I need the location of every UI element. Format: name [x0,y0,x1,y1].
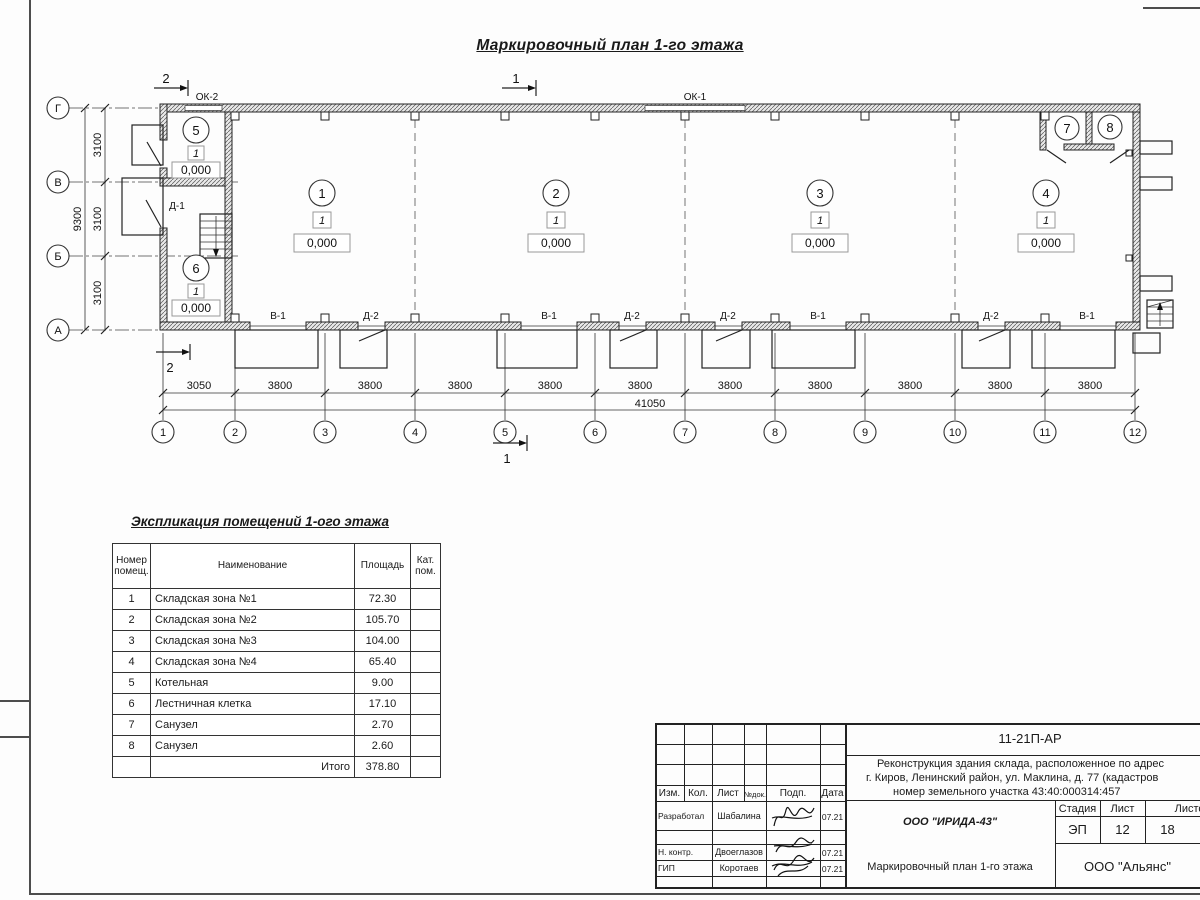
room-number: 8 [1106,120,1113,135]
gate-label: В-1 [810,311,826,322]
role-label: Разработал [658,811,712,821]
stamp-col-kol: Кол. [684,788,712,799]
list-value: 12 [1100,822,1145,837]
room-num-cell: 5 [113,673,151,694]
room-area-cell: 9.00 [355,673,411,694]
dim-label: 3800 [988,380,1012,392]
section-mark-label: 1 [503,451,510,466]
column-header: Площадь [355,544,411,589]
axis-letter: Б [54,251,61,263]
section-mark-label: 2 [166,360,173,375]
table-row: 5 Котельная 9.00 [113,673,441,694]
door-label: Д-2 [624,311,640,322]
room-category: 1 [553,215,559,227]
room-number: 5 [192,123,199,138]
dim-label: 3800 [268,380,292,392]
room-cat-cell [411,673,441,694]
stage-value: ЭП [1055,822,1100,837]
axis-number: 3 [322,427,328,439]
axis-number: 10 [949,427,961,439]
stamp-col-list: Лист [712,788,744,799]
room-num-cell: 8 [113,736,151,757]
room-cat-cell [411,715,441,736]
gate-label: В-1 [541,311,557,322]
door-label: Д-2 [363,311,379,322]
door-label: Д-2 [720,311,736,322]
room-cat-cell [411,694,441,715]
company-name: ООО "Альянс" [1055,859,1200,874]
empty-cell [113,757,151,778]
exterior-stair [1147,300,1173,328]
room-elevation: 0,000 [181,163,211,177]
building-walls [160,104,1140,330]
role-name: Коротаев [712,863,766,873]
axis-letter: А [54,325,62,337]
room-name-cell: Лестничная клетка [151,694,355,715]
room-num-cell: 2 [113,610,151,631]
table-row: 1 Складская зона №1 72.30 [113,589,441,610]
signature-dvoeglazov-korotaev [768,836,818,878]
role-date: 07.21 [820,848,845,858]
exterior-porches [122,125,1172,368]
room-number: 6 [192,261,199,276]
room-elevation: 0,000 [1031,236,1061,250]
role-label: Н. контр. [658,847,712,857]
axis-number: 4 [412,427,418,439]
room-num-cell: 7 [113,715,151,736]
room-number: 7 [1063,121,1070,136]
room-cat-cell [411,631,441,652]
axis-number: 6 [592,427,598,439]
room-name-cell: Складская зона №4 [151,652,355,673]
signature-shabalina [768,802,818,830]
dim-label: 3800 [628,380,652,392]
room-num-cell: 1 [113,589,151,610]
room-name-cell: Котельная [151,673,355,694]
room-num-cell: 4 [113,652,151,673]
table-row: 6 Лестничная клетка 17.10 [113,694,441,715]
table-row: 3 Складская зона №3 104.00 [113,631,441,652]
column-header: Наименование [151,544,355,589]
dim-label: 3800 [808,380,832,392]
room-category: 1 [193,286,199,298]
axis-letter: В [54,177,61,189]
section-mark-label: 2 [162,71,169,86]
dim-label: 3800 [718,380,742,392]
org-name: ООО "ИРИДА-43" [845,816,1055,828]
dim-total-label: 41050 [635,398,666,410]
room-name-cell: Складская зона №1 [151,589,355,610]
role-date: 07.21 [820,864,845,874]
axis-number: 1 [160,427,166,439]
table-total-row: Итого 378.80 [113,757,441,778]
dim-label: 3800 [898,380,922,392]
total-label: Итого [151,757,355,778]
column-header: Кат. пом. [411,544,441,589]
frame-bottom-border [29,893,1200,895]
opening-labels: ОК-2 ОК-1 Д-1 В-1 Д-2 В-1 Д-2 Д-2 В-1 Д-… [169,92,1095,322]
dim-label: 3800 [1078,380,1102,392]
window-label: ОК-1 [684,92,707,103]
stage-label: Стадия [1055,803,1100,815]
dim-label: 3100 [92,281,104,305]
room-number: 3 [816,186,823,201]
room-elevation: 0,000 [805,236,835,250]
dim-label: 3050 [187,380,211,392]
axis-number: 12 [1129,427,1141,439]
axis-number: 5 [502,427,508,439]
sheet-name: Маркировочный план 1-го этажа [845,861,1055,873]
room-category: 1 [1043,215,1049,227]
table-row: 4 Складская зона №4 65.40 [113,652,441,673]
window-label: ОК-2 [196,92,219,103]
project-line-3: номер земельного участка 43:40:000314:45… [893,786,1121,798]
section-marks: 2 1 2 1 [154,71,536,466]
listov-value: 18 [1145,822,1190,837]
room-name-cell: Санузел [151,736,355,757]
room-area-cell: 104.00 [355,631,411,652]
axis-number: 7 [682,427,688,439]
room-area-cell: 105.70 [355,610,411,631]
room-category: 1 [817,215,823,227]
explication-title: Экспликация помещений 1-ого этажа [108,514,412,529]
room-number: 1 [318,186,325,201]
door-label: Д-1 [169,201,185,212]
room-cat-cell [411,652,441,673]
room-markers: 1 1 0,000 2 1 0,000 3 1 0,000 4 1 0,000 … [172,115,1122,316]
role-date: 07.21 [820,812,845,822]
list-label: Лист [1100,803,1145,815]
room-area-cell: 65.40 [355,652,411,673]
table-row: 2 Складская зона №2 105.70 [113,610,441,631]
room-elevation: 0,000 [541,236,571,250]
room-cat-cell [411,610,441,631]
room-area-cell: 2.70 [355,715,411,736]
dim-total-label: 9300 [72,207,84,231]
axis-number-bubbles: 1 2 3 4 5 6 7 8 9 10 11 12 [152,421,1146,443]
room-category: 1 [319,215,325,227]
table-row: 7 Санузел 2.70 [113,715,441,736]
role-name: Шабалина [712,811,766,821]
gate-label: В-1 [1079,311,1095,322]
axis-number: 8 [772,427,778,439]
dim-label: 3800 [358,380,382,392]
room-name-cell: Складская зона №3 [151,631,355,652]
room-num-cell: 3 [113,631,151,652]
section-mark-label: 1 [512,71,519,86]
door-label: Д-2 [983,311,999,322]
dim-label: 3100 [92,133,104,157]
stamp-col-ndok: №док. [744,790,766,799]
axis-number: 2 [232,427,238,439]
stamp-col-izm: Изм. [655,788,684,799]
room-area-cell: 2.60 [355,736,411,757]
room-elevation: 0,000 [181,301,211,315]
dim-label: 3100 [92,207,104,231]
room-num-cell: 6 [113,694,151,715]
empty-cell [411,757,441,778]
project-line-1: Реконструкция здания склада, расположенн… [877,758,1164,770]
room-name-cell: Санузел [151,715,355,736]
pilaster-columns [231,112,1132,322]
room-area-cell: 72.30 [355,589,411,610]
room-category: 1 [193,148,199,160]
floor-plan: 3050 3800 3800 3800 3800 3800 3800 3800 … [0,0,1200,480]
gate-label: В-1 [270,311,286,322]
frame-left-tick-1 [0,700,29,702]
axis-letter-bubbles: Г В Б А [47,97,69,341]
role-name: Двоеглазов [712,847,766,857]
explication-header-row: Номер помещ. Наименование Площадь Кат. п… [113,544,441,589]
total-area: 378.80 [355,757,411,778]
project-line-2: г. Киров, Ленинский район, ул. Маклина, … [866,772,1158,784]
dim-label: 3800 [448,380,472,392]
room-name-cell: Складская зона №2 [151,610,355,631]
axis-letter: Г [55,103,61,115]
axis-number: 11 [1039,427,1050,439]
room-number: 2 [552,186,559,201]
room-area-cell: 17.10 [355,694,411,715]
explication-table: Номер помещ. Наименование Площадь Кат. п… [112,543,441,778]
frame-left-tick-2 [0,736,29,738]
drawing-sheet: { "title": "Маркировочный план 1-го этаж… [0,0,1200,900]
table-row: 8 Санузел 2.60 [113,736,441,757]
stamp-col-podp: Подп. [766,788,820,799]
role-label: ГИП [658,863,712,873]
stamp-col-data: Дата [820,788,845,799]
room-cat-cell [411,736,441,757]
column-header: Номер помещ. [113,544,151,589]
axis-number: 9 [862,427,868,439]
doc-code: 11-21П-АР [845,731,1200,746]
room-elevation: 0,000 [307,236,337,250]
room-cat-cell [411,589,441,610]
listov-label: Листов [1145,803,1200,815]
dim-label: 3800 [538,380,562,392]
room-number: 4 [1042,186,1049,201]
